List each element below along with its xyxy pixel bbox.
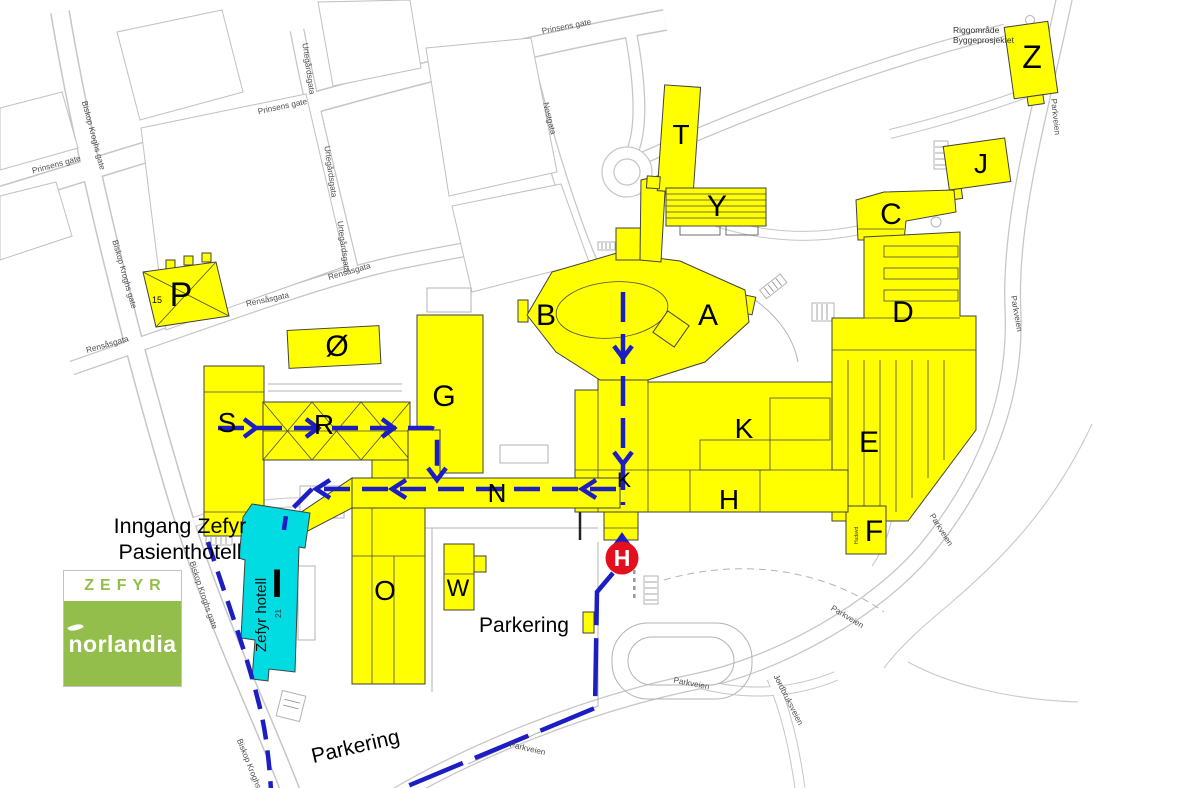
entrance-note: Inngang Zefyr Pasienthotell <box>90 513 270 565</box>
building-label-d: D <box>892 296 914 329</box>
parking-label-lower: Parkering <box>309 725 402 768</box>
building-label-n: N <box>488 478 507 508</box>
parking-marker-block <box>583 612 594 633</box>
building-label-s: S <box>218 407 237 438</box>
hotel-letter: I <box>271 562 282 606</box>
street-label-parkveien: Parkveien <box>1049 98 1062 136</box>
building-p-number: 15 <box>152 295 162 305</box>
building-label-z: Z <box>1022 39 1042 75</box>
building-label-k2: K <box>617 469 631 492</box>
building-d-e <box>832 232 976 521</box>
building-label-k: K <box>735 413 754 444</box>
hotel-name: Zefyr hotell <box>253 578 270 652</box>
building-label-j: J <box>974 148 988 179</box>
street-label-parkveien: Parkveien <box>509 740 547 757</box>
building-label-b: B <box>536 299 556 332</box>
building-label-oe: Ø <box>325 330 348 363</box>
building-label-h: H <box>719 484 739 515</box>
parking-kiosk <box>276 690 306 721</box>
entrance-marker-label: H <box>614 545 631 571</box>
logo-zefyr-text: ZEFYR <box>78 577 166 595</box>
logo-norlandia-text: norlandia <box>68 631 176 658</box>
building-label-e: E <box>859 426 879 459</box>
building-label-y: Y <box>707 190 727 223</box>
construction-area-line1: Riggområde <box>953 25 1000 35</box>
hospital-campus-map: H Prinsens gate Prinsens gate Prinsens g… <box>0 0 1181 788</box>
building-label-o: O <box>374 575 396 606</box>
building-label-a: A <box>698 299 718 332</box>
construction-area-line2: Byggeprosjektet <box>953 35 1015 45</box>
building-label-t: T <box>672 119 689 150</box>
hotel-number: 21 <box>274 609 283 618</box>
building-f-side-label: Hudavd <box>854 527 860 544</box>
parking-label-main: Parkering <box>479 614 569 637</box>
building-label-p: P <box>170 276 193 314</box>
building-label-g: G <box>432 380 455 413</box>
logo-band: ZEFYR <box>64 571 181 601</box>
entrance-dots <box>633 570 636 598</box>
building-label-c: C <box>880 198 902 231</box>
entrance-note-line2: Pasienthotell <box>90 539 270 565</box>
entrance-marker: H <box>606 542 639 575</box>
building-label-r: R <box>314 409 334 440</box>
building-label-w: W <box>447 575 470 602</box>
building-label-f: F <box>865 515 883 548</box>
zefyr-norlandia-logo: ZEFYR norlandia <box>63 570 182 687</box>
entrance-note-line1: Inngang Zefyr <box>90 513 270 539</box>
logo-body: norlandia <box>64 601 181 688</box>
